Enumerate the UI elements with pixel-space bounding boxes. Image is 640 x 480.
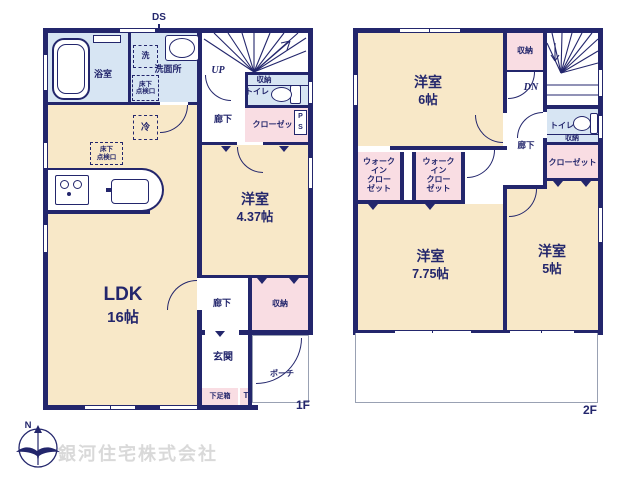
- wall: [128, 33, 131, 102]
- wic-1: ウォーク イン クロー ゼット: [358, 152, 400, 200]
- ldk-size: 16帖: [81, 309, 165, 326]
- window: [308, 82, 313, 103]
- ps-s: S: [298, 123, 303, 134]
- door-arc: [205, 75, 231, 101]
- window: [598, 208, 603, 242]
- window-tick: [110, 406, 111, 409]
- toilet-2f-label: トイレ: [545, 121, 579, 130]
- stairs-dn-label: DN: [517, 82, 545, 94]
- wall: [412, 152, 416, 200]
- wall: [503, 185, 507, 330]
- window: [160, 405, 197, 410]
- room775-name: 洋室: [383, 248, 478, 264]
- compass-north-label: N: [21, 421, 35, 432]
- wall: [461, 152, 465, 200]
- fridge-space: 冷: [133, 115, 158, 140]
- window: [308, 158, 313, 188]
- stairs-up-label: UP: [205, 65, 231, 77]
- wall: [400, 152, 404, 200]
- wall: [547, 105, 598, 109]
- porch-label: ポーチ: [260, 369, 304, 378]
- door-mark-icon: [279, 146, 289, 152]
- door-mark-icon: [553, 181, 563, 187]
- hatch-line2: 点検口: [136, 88, 156, 95]
- counter-edge: [48, 210, 150, 214]
- toilet-storage-label: 収納: [246, 76, 282, 85]
- door-mark-icon: [581, 181, 591, 187]
- faucet-icon: [106, 188, 112, 192]
- hatch-line1: 床下: [139, 81, 152, 88]
- hatch-line1: 床下: [100, 146, 113, 153]
- window: [400, 28, 460, 33]
- storage-2f-label: 収納: [517, 47, 533, 56]
- wic-line: ゼット: [427, 185, 451, 194]
- window: [598, 70, 603, 96]
- closet-2f-label: クローゼット: [547, 158, 598, 167]
- room775-size: 7.75帖: [383, 267, 478, 281]
- hatch-line2: 点検口: [97, 154, 117, 161]
- door-mark-icon: [368, 204, 378, 210]
- entrance-label: 玄関: [200, 352, 246, 364]
- hallway-2f-label: 廊下: [508, 141, 544, 151]
- underfloor-hatch-ldk: 床下 点検口: [90, 142, 123, 165]
- storage-2f: 収納: [507, 33, 543, 70]
- toilet-storage-2f-label: 収納: [551, 135, 593, 143]
- window: [43, 225, 48, 252]
- floor2-plan: ウォーク イン クロー ゼット ウォーク イン クロー ゼット 収納: [353, 28, 603, 335]
- door-mark-icon: [425, 204, 435, 210]
- stairs-2f: [547, 33, 598, 105]
- door-mark-icon: [289, 278, 299, 284]
- ds-tick: [158, 24, 160, 30]
- wall: [263, 142, 308, 145]
- western-room-size: 4.37帖: [202, 210, 308, 224]
- window-tick: [429, 29, 430, 32]
- room6-size: 6帖: [383, 93, 473, 107]
- window: [353, 75, 358, 105]
- hallway-lower-label: 廊下: [200, 298, 244, 308]
- balcony-area: [355, 333, 598, 403]
- door-mark-icon: [215, 331, 225, 337]
- wall: [197, 330, 205, 335]
- bathroom-label: 浴室: [81, 69, 125, 79]
- stove-icon: [55, 175, 89, 205]
- ds-label: DS: [146, 12, 172, 24]
- window: [43, 55, 48, 90]
- company-name: 銀河住宅株式会社: [58, 440, 218, 466]
- wall: [188, 102, 197, 105]
- wall: [43, 405, 258, 410]
- stove-burner: [73, 180, 82, 189]
- toilet-bowl-icon: [271, 87, 292, 102]
- toilet-label: トイレ: [241, 87, 273, 96]
- stove-knob: [67, 192, 71, 196]
- washbasin-bowl: [169, 38, 195, 58]
- toilet-tank-icon: [590, 113, 598, 134]
- window: [43, 143, 48, 168]
- kitchen-sink-icon: [111, 179, 149, 204]
- door-mark-icon: [221, 146, 231, 152]
- room5-name: 洋室: [521, 243, 583, 259]
- room5-size: 5帖: [521, 262, 583, 276]
- ldk-name: LDK: [81, 284, 165, 306]
- shoe-box: 下足箱: [202, 388, 238, 405]
- wall: [245, 105, 308, 108]
- hall-storage-label: 収納: [252, 299, 308, 308]
- washroom-label: 洗面所: [142, 64, 194, 74]
- floorplan-canvas: 下足箱 T: [0, 0, 640, 480]
- stove-burner: [60, 180, 69, 189]
- hallway-upper-label: 廊下: [203, 114, 243, 124]
- door-mark-icon: [257, 278, 267, 284]
- window: [598, 116, 603, 138]
- wall: [503, 33, 507, 113]
- window: [120, 28, 155, 33]
- underfloor-hatch-washroom: 床下 点検口: [132, 75, 159, 101]
- door-arc: [467, 150, 495, 178]
- washer-label: 洗: [142, 52, 150, 61]
- shoe-box-label: 下足箱: [210, 393, 231, 401]
- wic-line: ゼット: [367, 185, 391, 194]
- ps-shaft: P S: [294, 110, 307, 135]
- wall: [197, 142, 237, 145]
- ps-p: P: [298, 112, 303, 123]
- floor1-label: 1F: [289, 399, 317, 413]
- fridge-label: 冷: [141, 122, 150, 132]
- door-arc: [517, 112, 543, 138]
- wic-2: ウォーク イン クロー ゼット: [416, 152, 461, 200]
- wall: [48, 102, 160, 105]
- room6-name: 洋室: [383, 74, 473, 90]
- wall: [245, 72, 308, 75]
- western-room-name: 洋室: [202, 191, 308, 207]
- bath-counter-icon: [93, 35, 121, 43]
- floor2-label: 2F: [576, 404, 604, 418]
